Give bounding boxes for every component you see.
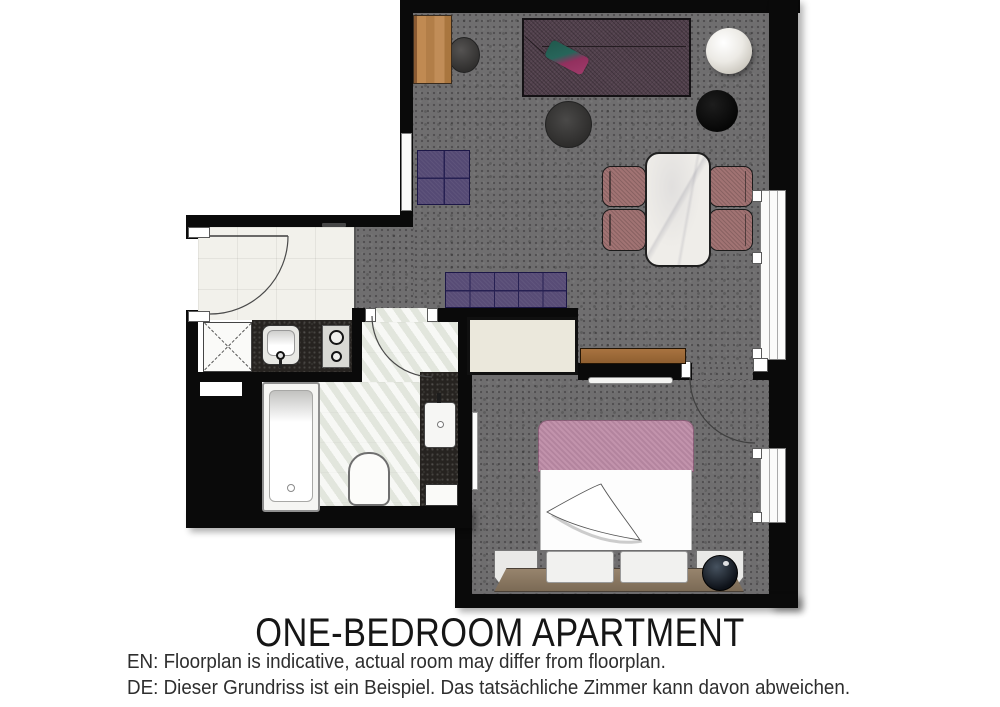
hob-burner [329,330,344,345]
tub-drain [287,484,295,492]
page-title: ONE-BEDROOM APARTMENT [70,611,930,656]
bathroom-door-threshold [376,308,427,322]
basin-drain [437,421,444,428]
vanity-basin [424,402,456,448]
washer-unit [203,322,252,372]
square-ottoman [417,150,470,205]
window-sill-tab [752,190,762,202]
bathtub [262,382,320,512]
bed-pillow [546,551,614,583]
vanity-faucet [437,393,441,403]
hob-burner [331,351,342,362]
dining-chair [602,166,646,207]
wall-rail [588,377,673,384]
wall-bottom-bedroom [455,594,798,608]
wardrobe [467,317,578,375]
wall-entry-top [186,215,413,227]
toilet [348,452,390,506]
window-dining-right [760,190,786,360]
disclaimer-de: DE: Dieser Grundriss ist ein Beispiel. D… [127,677,850,700]
corner-sofa [522,18,691,97]
mirror [472,412,478,490]
upholstered-bench [445,272,567,308]
window-sill-tab [752,512,762,523]
wall-shelf-desk [580,348,686,364]
window-sill-tab [752,252,762,264]
round-side-table-white [706,28,752,74]
window-living-left [401,133,412,211]
wall-left-bedroom [455,520,472,608]
console-desk [413,15,452,84]
two-burner-hob [322,325,350,368]
wall-bottom-bathroom [186,506,472,528]
entry-hall-kitchenette [198,227,355,320]
dimension-mark [322,223,346,227]
window-bedroom-right [760,448,786,523]
bed-sheet [540,470,692,550]
bed-blanket [538,420,694,472]
hall-carpet-strip [355,227,413,310]
dining-chair [709,166,753,207]
bathroom-jamb-left [365,308,376,322]
wall-top [400,0,800,13]
entrance-jamb-top [188,227,210,238]
table-lamp [702,555,738,591]
round-side-table-black [696,90,738,132]
floor-material-divider [354,227,356,310]
bed-pillow [620,551,688,583]
dining-table-marble [645,152,711,267]
floorplan-page: ONE-BEDROOM APARTMENT EN: Floorplan is i… [0,0,1000,707]
window-sill-tab [752,448,762,459]
wall-kitchen-bath [198,372,362,382]
dining-chair [709,209,753,251]
kitchen-sink [262,325,300,365]
vanity-shelf [425,484,458,506]
disclaimer-en: EN: Floorplan is indicative, actual room… [127,651,666,674]
bathroom-jamb-right [427,308,438,322]
throw-pillow [544,39,590,75]
bedroom-jamb-right [753,358,768,372]
wall-kitchen-right [352,322,362,382]
stool [448,37,480,73]
pouf [545,101,592,148]
bedroom-doorway-floor [690,365,753,380]
dining-chair [602,209,646,251]
entrance-jamb-bottom [188,311,210,322]
